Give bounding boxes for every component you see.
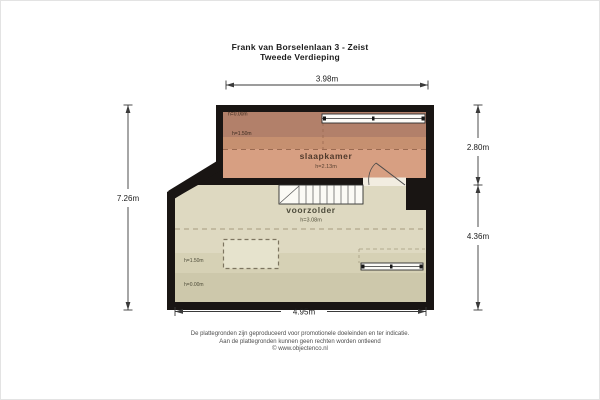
roof-window-cap-mid xyxy=(372,117,375,121)
stair-outline xyxy=(279,185,363,204)
slaapkamer-label: slaapkamer xyxy=(300,151,353,161)
dashed-floor-opening xyxy=(224,240,279,269)
radiator-cap-right xyxy=(420,265,423,269)
roof-window-cap-right xyxy=(422,117,425,121)
voorzolder-contour-150-label: h=1.50m xyxy=(184,258,204,264)
door-opening xyxy=(363,178,406,187)
slaapkamer-height-label: h=2.13m xyxy=(315,164,337,170)
staircase xyxy=(279,185,363,204)
dimension-left-label: 7.26m xyxy=(117,194,140,203)
dimension-top-label: 3.98m xyxy=(316,75,339,84)
voorzolder-contour-0m-label: h=0.00m xyxy=(184,282,204,288)
disclaimer: De plattegronden zijn geproduceerd voor … xyxy=(1,331,599,354)
disclaimer-line1: De plattegronden zijn geproduceerd voor … xyxy=(1,331,599,339)
radiator-cap-left xyxy=(362,265,365,269)
dimension-top: 3.98m xyxy=(226,75,428,90)
voorzolder-height-label: h=3.08m xyxy=(300,218,322,224)
slaapkamer-midroof-band xyxy=(223,137,426,149)
roof-window-cap-left xyxy=(323,117,326,121)
voorzolder-lowroof-band xyxy=(175,273,426,302)
dimension-right-lower-label: 4.36m xyxy=(467,232,490,241)
dimension-left: 7.26m xyxy=(117,105,140,310)
chimney-block xyxy=(406,185,426,210)
dimension-right-lower: 4.36m xyxy=(467,185,490,310)
dimension-right-upper: 2.80m xyxy=(467,105,490,185)
roof-window xyxy=(322,114,425,123)
floorplan-page: Frank van Borselenlaan 3 - Zeist Tweede … xyxy=(0,0,600,400)
radiator xyxy=(361,263,423,270)
slaapkamer-contour-0m-label: h=0.00m xyxy=(228,112,248,118)
voorzolder-label: voorzolder xyxy=(286,205,336,215)
dimension-bottom-label: 4.95m xyxy=(293,308,316,317)
slaapkamer-room: h=0.00m h=1.50m slaapkamer h=2.13m xyxy=(223,112,426,179)
radiator-cap-mid xyxy=(390,265,393,269)
slaapkamer-contour-150-label: h=1.50m xyxy=(232,131,252,137)
dimension-right-upper-label: 2.80m xyxy=(467,143,490,152)
disclaimer-copyright: © www.objectenco.nl xyxy=(1,346,599,354)
